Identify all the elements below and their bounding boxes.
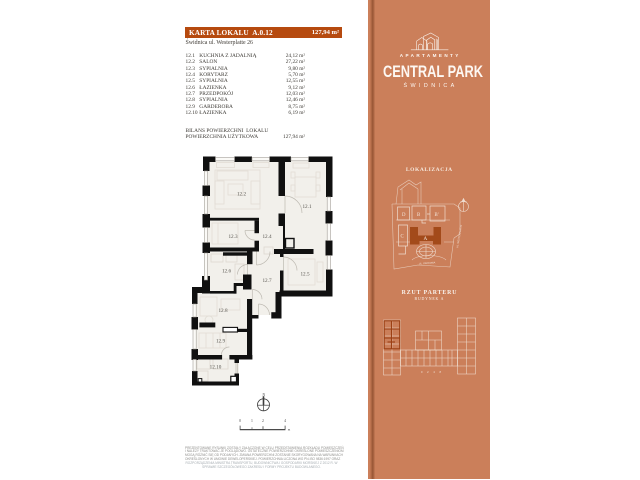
svg-text:2: 2 bbox=[262, 419, 264, 423]
svg-text:D: D bbox=[402, 213, 406, 218]
svg-text:12.3: 12.3 bbox=[228, 234, 237, 240]
svg-text:1: 1 bbox=[251, 419, 253, 423]
svg-text:0 2 4 8: 0 2 4 8 bbox=[421, 370, 443, 374]
svg-text:12.7: 12.7 bbox=[262, 278, 271, 284]
svg-text:N: N bbox=[262, 393, 265, 397]
svg-text:12.9: 12.9 bbox=[216, 338, 225, 344]
svg-text:12.6: 12.6 bbox=[222, 269, 231, 275]
svg-text:B': B' bbox=[435, 213, 439, 218]
svg-text:m: m bbox=[288, 428, 291, 432]
svg-text:12.5: 12.5 bbox=[300, 272, 309, 278]
svg-text:UL. WESTERPLATTE: UL. WESTERPLATTE bbox=[456, 224, 463, 248]
svg-text:12.10: 12.10 bbox=[210, 365, 222, 371]
svg-text:B: B bbox=[417, 213, 420, 218]
svg-text:12.4: 12.4 bbox=[262, 234, 271, 240]
svg-text:12.8: 12.8 bbox=[218, 308, 227, 314]
svg-text:A: A bbox=[424, 236, 428, 242]
svg-text:UL. PARKOWA: UL. PARKOWA bbox=[419, 261, 436, 265]
svg-text:12.2: 12.2 bbox=[237, 192, 246, 198]
svg-text:C: C bbox=[401, 235, 404, 240]
svg-text:12.1: 12.1 bbox=[302, 204, 311, 210]
svg-text:4: 4 bbox=[284, 419, 286, 423]
svg-text:0: 0 bbox=[239, 419, 241, 423]
